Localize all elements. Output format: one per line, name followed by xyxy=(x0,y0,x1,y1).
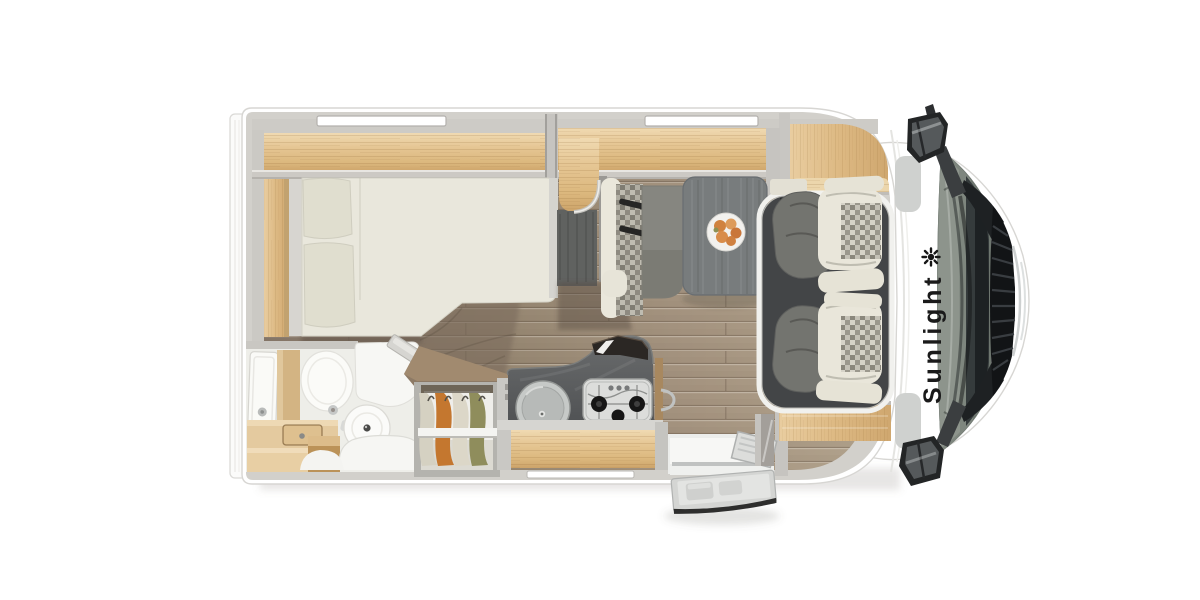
svg-text:Sunlight: Sunlight xyxy=(919,274,947,404)
